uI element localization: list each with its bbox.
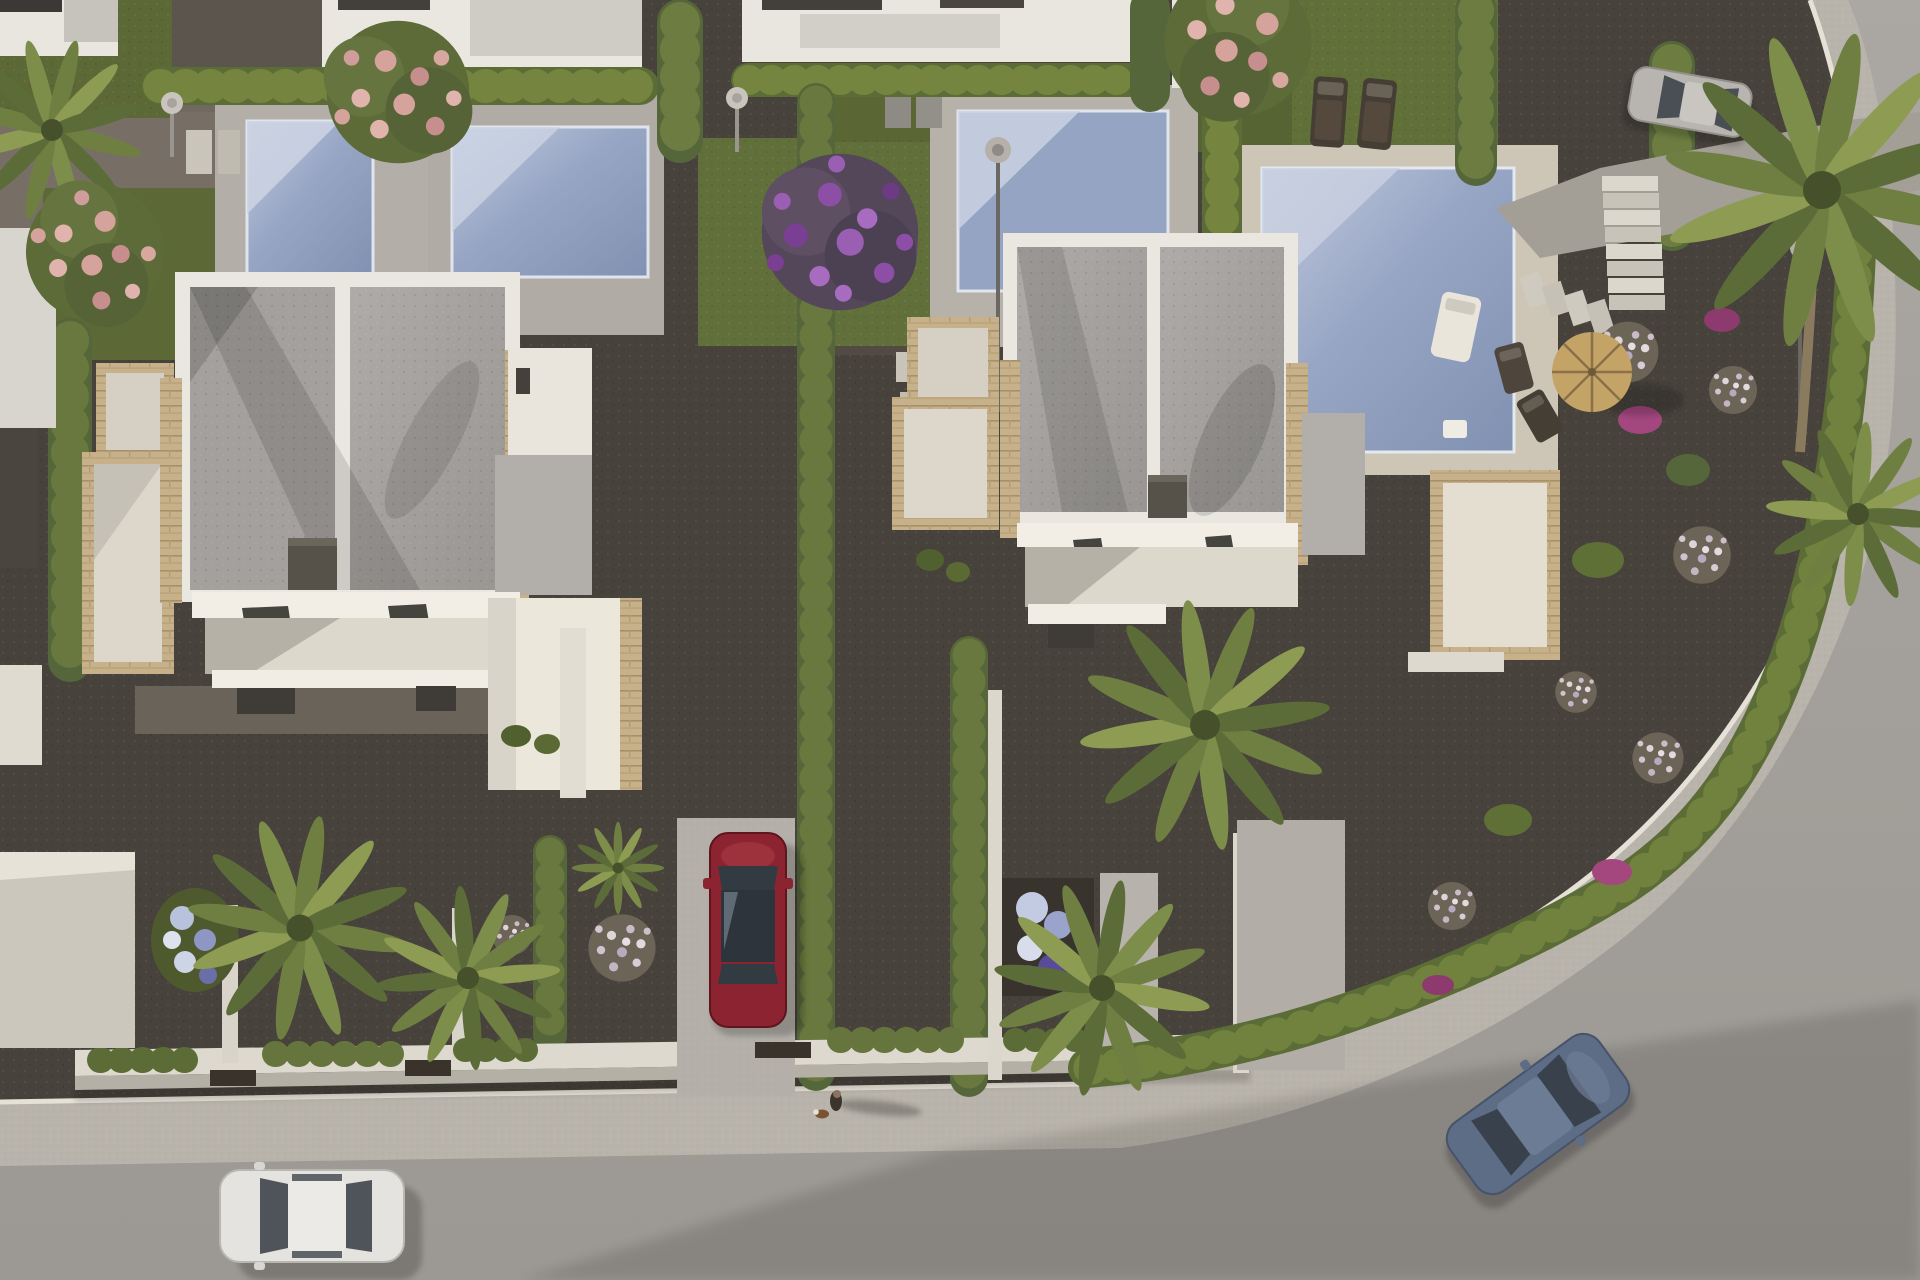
car-white-mirror-t (254, 1162, 265, 1170)
divider-wall-1 (560, 628, 586, 798)
lv-bush-1 (501, 725, 531, 747)
lv-stone-west (160, 378, 182, 603)
dark-lounger-1 (1310, 76, 1349, 148)
slab-2 (218, 130, 240, 174)
aerial-render (0, 0, 1920, 1280)
building-1-roof (64, 0, 118, 42)
building-1-window (0, 0, 62, 12)
lv-east-terrace-stone (620, 598, 642, 790)
gate-1 (210, 1070, 256, 1086)
rv-annex-roof (1302, 413, 1365, 555)
car-white-glass-bottom (292, 1251, 342, 1258)
lv-bush-2 (534, 734, 560, 754)
gate-2 (405, 1060, 451, 1076)
car-white-mirror-b (254, 1262, 265, 1270)
rv-east-terrace (1443, 483, 1547, 647)
car-red-mirror-l (703, 878, 712, 889)
rv-chimney-top (1148, 475, 1187, 482)
scene-canvas (0, 0, 1920, 1280)
magenta-patch-2 (1704, 308, 1740, 332)
lv-door-1 (237, 688, 295, 714)
car-red-hood (721, 842, 775, 870)
ball-shrub-3 (1673, 526, 1731, 584)
dog-head (813, 1109, 819, 1115)
neighbour-west-windows (0, 428, 38, 568)
lv-annex-roof (495, 455, 592, 595)
ball-shrub-5 (1555, 671, 1597, 713)
gate-3 (755, 1042, 811, 1058)
path-left-garden (135, 686, 535, 734)
rv-bush-1 (916, 549, 944, 571)
car-red-windshield (718, 866, 778, 890)
car-red (703, 833, 804, 1036)
lv-chimney-top (288, 538, 337, 546)
rv-facade-band (1017, 523, 1298, 547)
car-white-rear-glass (346, 1180, 372, 1252)
ball-shrub-4 (1632, 732, 1683, 783)
flower-bed-left (151, 888, 239, 992)
neighbour-west-wall (0, 665, 42, 765)
lv-facade-band (192, 592, 520, 618)
purple-tree (762, 154, 918, 310)
person-head (833, 1090, 841, 1098)
rv-bush-2 (946, 562, 970, 582)
ball-shrub-left-2 (588, 914, 655, 981)
dark-lounger-2 (1356, 77, 1397, 150)
car-red-mirror-r (784, 878, 793, 889)
rv-porch-slab (1028, 604, 1166, 624)
building-3-window-1 (762, 0, 882, 10)
rv-door-1 (1048, 624, 1094, 648)
lv-annex-window (516, 368, 530, 394)
car-white (220, 1162, 422, 1280)
car-red-rear-glass (718, 964, 778, 984)
ball-shrub-2 (1709, 366, 1757, 414)
rv-terrace-1 (918, 328, 988, 406)
lv-door-2 (416, 686, 456, 711)
curve-bush-1 (1572, 542, 1624, 578)
building-3-window-2 (940, 0, 1024, 8)
lv-east-terrace-shade (488, 598, 516, 790)
magenta-patch-4 (1422, 975, 1454, 995)
lv-porch-slab (212, 670, 522, 688)
divider-wall-4 (988, 690, 1002, 1080)
ball-shrub-6 (1428, 882, 1476, 930)
neighbour-west-terrace (0, 852, 135, 1048)
magenta-patch-3 (1592, 859, 1632, 885)
building-3-recess (800, 14, 1000, 48)
building-2-terrace (470, 0, 642, 56)
car-white-glass-top (292, 1174, 342, 1181)
rv-east-wall (1408, 652, 1504, 672)
car-white-windshield (260, 1178, 288, 1254)
slab-1 (186, 130, 212, 174)
rv-terrace-2 (904, 409, 987, 518)
rv-stone-west (1000, 360, 1020, 538)
curve-bush-2 (1666, 454, 1710, 486)
lv-terrace-1 (106, 373, 164, 450)
lv-annex-wall (508, 348, 592, 456)
building-2-window (338, 0, 430, 10)
curve-bush-3 (1484, 804, 1532, 836)
side-table (1443, 420, 1467, 438)
car-white-roof (288, 1180, 346, 1252)
